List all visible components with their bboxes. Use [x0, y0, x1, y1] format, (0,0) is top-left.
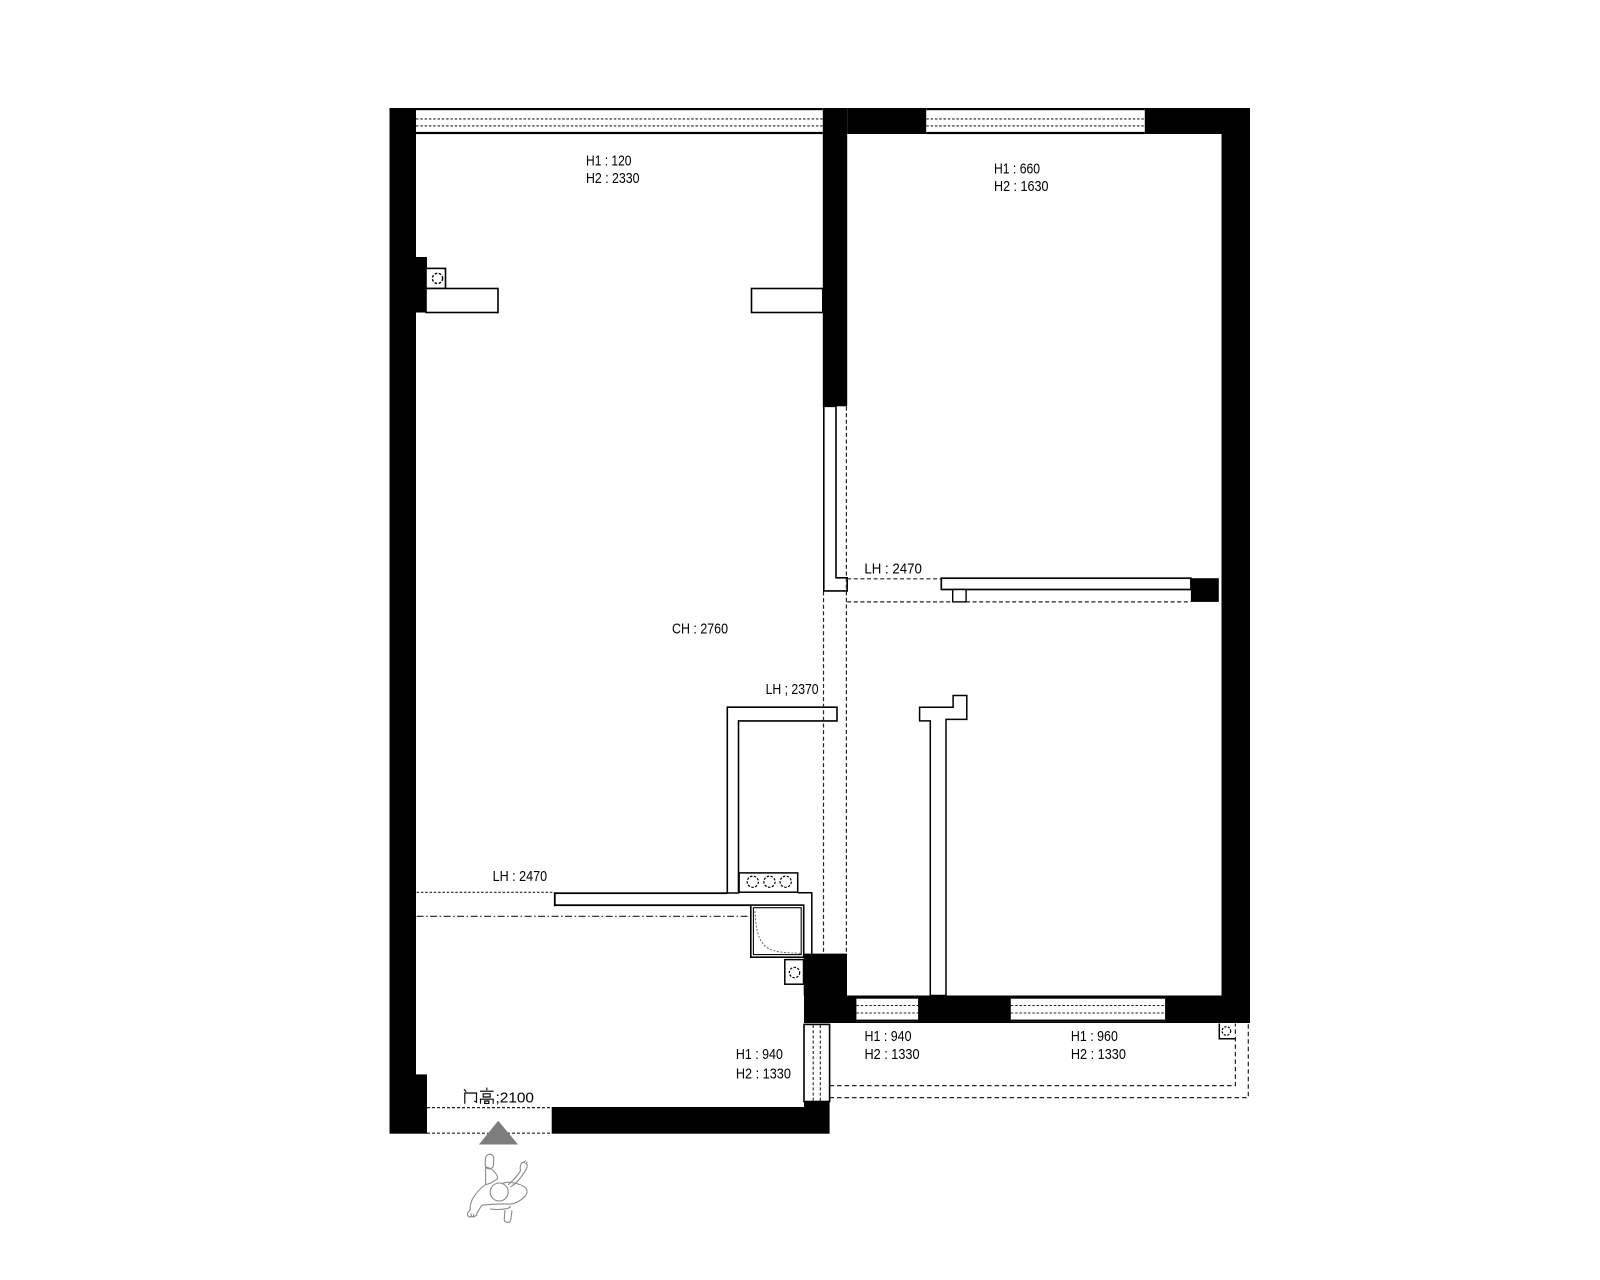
svg-text:;2100: ;2100 [496, 1090, 535, 1107]
svg-text:CH : 2760: CH : 2760 [672, 621, 728, 638]
svg-text:H2 : 1630: H2 : 1630 [994, 178, 1049, 195]
svg-text:LH : 2470: LH : 2470 [493, 868, 547, 885]
svg-text:H1 : 120: H1 : 120 [586, 153, 632, 170]
svg-text:LH : 2470: LH : 2470 [864, 561, 922, 578]
svg-text:H2 : 1330: H2 : 1330 [1071, 1046, 1126, 1063]
svg-text:H2 : 1330: H2 : 1330 [865, 1046, 920, 1063]
svg-text:LH ; 2370: LH ; 2370 [766, 681, 819, 698]
svg-text:H1 : 960: H1 : 960 [1071, 1028, 1118, 1045]
svg-text:H1 : 940: H1 : 940 [865, 1028, 912, 1045]
svg-text:H2 : 1330: H2 : 1330 [736, 1065, 791, 1082]
svg-text:H2 : 2330: H2 : 2330 [586, 170, 640, 187]
svg-text:H1 : 660: H1 : 660 [994, 160, 1040, 177]
svg-text:H1 : 940: H1 : 940 [736, 1046, 783, 1063]
